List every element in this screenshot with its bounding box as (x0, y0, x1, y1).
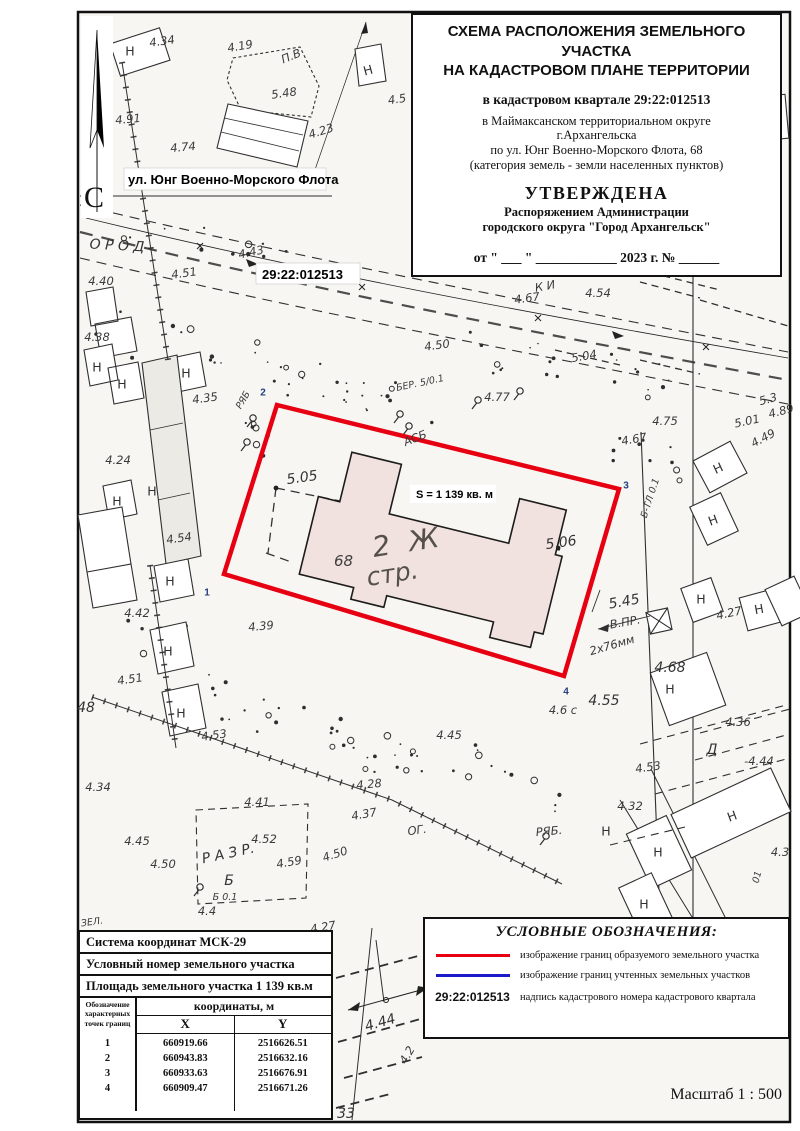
terrain-dot (381, 395, 383, 397)
legend-item: изображение границ учтенных земельных уч… (425, 970, 788, 981)
authority-line2: городского округа "Город Архангельск" (413, 220, 780, 236)
terrain-dot (273, 380, 276, 383)
map-label: 1 (204, 588, 210, 599)
legend-item: 29:22:012513надпись кадастрового номера … (425, 990, 788, 1004)
coordinate-value: 2516671.26 (235, 1081, 332, 1096)
terrain-dot (400, 743, 402, 745)
coordinate-data-area: 1234 660919.66660943.83660933.63660909.4… (137, 1034, 331, 1111)
terrain-dot (610, 353, 613, 356)
coordinate-grid: Обозначение характерных точек границ коо… (80, 998, 331, 1111)
map-label: 4.54 (585, 286, 611, 300)
map-label: 4.45 (124, 834, 150, 848)
map-label: 3 (623, 481, 629, 492)
coordinate-value: 660933.63 (137, 1066, 234, 1081)
terrain-dot (396, 766, 399, 769)
terrain-dot (278, 707, 280, 709)
map-label: 4.52 (251, 832, 277, 846)
terrain-dot (280, 366, 282, 368)
cadastral-quarter-line: в кадастровом квартале 29:22:012513 (413, 92, 780, 108)
legend-item: изображение границ образуемого земельног… (425, 950, 788, 961)
street-label: ул. Юнг Военно-Морского Флота (128, 172, 339, 187)
coordinate-value: 660909.47 (137, 1081, 234, 1096)
north-label: С (84, 181, 104, 214)
map-label: 4.3 (771, 845, 789, 859)
terrain-dot (612, 449, 616, 453)
xy-header-row: X Y (137, 1016, 331, 1034)
coordinate-value: 3 (80, 1066, 135, 1081)
map-label: Н (639, 897, 648, 912)
terrain-dot (416, 755, 418, 757)
map-label: Н (165, 574, 174, 589)
legend-box: УСЛОВНЫЕ ОБОЗНАЧЕНИЯ: изображение границ… (423, 917, 790, 1039)
map-label: Н (181, 366, 190, 381)
map-label: 4.39 (248, 618, 275, 634)
terrain-dot (130, 356, 134, 360)
terrain-dot (343, 399, 345, 401)
terrain-dot (504, 771, 506, 773)
terrain-dot (346, 390, 348, 392)
terrain-dot (469, 331, 472, 334)
terrain-dot (164, 228, 166, 230)
title-block: СХЕМА РАСПОЛОЖЕНИЯ ЗЕМЕЛЬНОГО УЧАСТКА НА… (411, 13, 782, 277)
map-label: РЯБ. (535, 823, 563, 839)
terrain-dot (367, 757, 369, 759)
coordinate-value: 2 (80, 1051, 135, 1066)
terrain-dot (286, 394, 289, 397)
terrain-dot (529, 347, 531, 349)
terrain-dot (388, 399, 392, 403)
point-header-line1: Обозначение (81, 1000, 134, 1009)
y-column-header: Y (235, 1016, 332, 1033)
recorded-boundary-symbol (425, 974, 520, 977)
map-label: Б 0.1 (213, 892, 238, 903)
terrain-dot (612, 459, 615, 462)
terrain-dot (220, 362, 222, 364)
map-label: Н (665, 682, 674, 697)
terrain-dot (634, 368, 636, 370)
map-label: 4.40 (88, 274, 114, 288)
terrain-dot (394, 754, 396, 756)
building-number-label: 68 (334, 552, 353, 570)
map-label: Н (163, 644, 172, 659)
map-label: 33 (337, 1106, 355, 1122)
conditional-number-row: Условный номер земельного участка (80, 954, 331, 976)
map-label: 4.36 (725, 715, 751, 729)
map-label: Н (653, 845, 662, 860)
terrain-dot (330, 732, 333, 735)
map-label: 4.74 (170, 139, 197, 155)
map-label: Д (706, 742, 718, 758)
terrain-dot (477, 749, 479, 751)
terrain-dot (557, 793, 561, 797)
map-label: 2 (260, 388, 266, 399)
map-label: Н (125, 44, 134, 59)
map-label: Н (696, 592, 705, 607)
x-column-header: X (137, 1016, 235, 1033)
terrain-dot (210, 354, 214, 358)
map-label: 4.34 (85, 780, 111, 794)
coordinate-system-row: Система координат МСК-29 (80, 932, 331, 954)
terrain-dot (220, 717, 223, 720)
address-line3: по ул. Юнг Военно-Морского Флота, 68 (413, 143, 780, 158)
coordinate-value: 4 (80, 1081, 135, 1096)
terrain-dot (365, 408, 367, 410)
approved-heading: УТВЕРЖДЕНА (413, 183, 780, 204)
coordinate-value: 2516632.16 (235, 1051, 332, 1066)
map-label: 4 (563, 687, 569, 698)
terrain-dot (335, 381, 338, 384)
point-number-column: 1234 (80, 1034, 137, 1111)
point-header-line2: характерных (81, 1009, 134, 1018)
terrain-dot (648, 459, 651, 462)
scheme-title: СХЕМА РАСПОЛОЖЕНИЯ ЗЕМЕЛЬНОГО УЧАСТКА НА… (413, 22, 780, 81)
terrain-dot (209, 358, 212, 361)
legend-rows: изображение границ образуемого земельног… (425, 950, 788, 1004)
terrain-dot (670, 461, 674, 465)
terrain-dot (636, 370, 639, 373)
terrain-dot (554, 810, 556, 812)
terrain-dot (171, 324, 175, 328)
map-label: 4.77 (484, 390, 510, 404)
terrain-dot (267, 361, 269, 363)
coordinate-value: 1 (80, 1036, 135, 1051)
authority-line1: Распоряжением Администрации (413, 205, 780, 221)
terrain-dot (180, 331, 182, 333)
address-block: в Маймаксанском территориальном округе г… (413, 114, 780, 173)
legend-title: УСЛОВНЫЕ ОБОЗНАЧЕНИЯ: (425, 924, 788, 941)
cadastral-number-symbol: 29:22:012513 (425, 990, 520, 1004)
terrain-dot (554, 804, 556, 806)
terrain-dot (243, 709, 245, 711)
terrain-dot (263, 699, 265, 701)
red-line-icon (436, 954, 510, 957)
terrain-dot (342, 744, 346, 748)
x-values-column: 660919.66660943.83660933.63660909.47 (137, 1034, 235, 1111)
terrain-dot (256, 730, 259, 733)
terrain-dot (319, 363, 321, 365)
terrain-dot (330, 727, 334, 731)
coordinate-value: 660919.66 (137, 1036, 234, 1051)
address-line1: в Маймаксанском территориальном округе (413, 114, 780, 129)
scale-label: Масштаб 1 : 500 (600, 1086, 782, 1104)
terrain-dot (353, 747, 355, 749)
blue-line-icon (436, 974, 510, 977)
terrain-dot (231, 252, 235, 256)
map-label: Н (117, 377, 126, 392)
terrain-dot (492, 372, 495, 375)
map-label: -4.44 (744, 754, 774, 768)
map-label: 4.50 (150, 857, 176, 871)
legend-code-text: 29:22:012513 (435, 990, 510, 1004)
map-label: 4.75 (652, 414, 678, 428)
terrain-dot (346, 382, 348, 384)
terrain-dot (322, 395, 324, 397)
terrain-dot (254, 352, 256, 354)
map-label: 4.91 (115, 111, 142, 127)
legend-item-text: надпись кадастрового номера кадастрового… (520, 992, 756, 1003)
map-label: 4.5 (387, 91, 407, 107)
terrain-dot (452, 769, 455, 772)
approval-authority: Распоряжением Администрации городского о… (413, 205, 780, 236)
terrain-dot (647, 389, 649, 391)
map-label: 4.24 (105, 453, 131, 467)
terrain-dot (499, 369, 502, 372)
terrain-dot (203, 227, 205, 229)
map-label: 4.6 с (549, 703, 578, 717)
coordinate-table: Система координат МСК-29 Условный номер … (78, 930, 333, 1120)
land-category-line: (категория земель - земли населенных пун… (413, 158, 780, 173)
map-label: 48 (77, 700, 95, 716)
coordinate-value: 2516626.51 (235, 1036, 332, 1051)
coordinate-value: 2516676.91 (235, 1066, 332, 1081)
map-label: 4.41 (244, 795, 270, 809)
point-header-line3: точек границ (81, 1019, 134, 1028)
map-label: Н (176, 706, 185, 721)
terrain-dot (140, 627, 143, 630)
terrain-dot (336, 730, 339, 733)
terrain-dot (545, 373, 548, 376)
cadastral-scheme-page: ул. Юнг Военно-Морского Флота 29:22:0125… (0, 0, 800, 1131)
terrain-dot (288, 383, 290, 385)
terrain-dot (302, 378, 304, 380)
quarter-number-label: 29:22:012513 (262, 267, 343, 282)
terrain-dot (245, 422, 247, 424)
terrain-dot (211, 687, 215, 691)
map-label: 4.45 (436, 728, 462, 742)
scheme-title-line2: НА КАДАСТРОВОМ ПЛАНЕ ТЕРРИТОРИИ (413, 61, 780, 81)
parcel-area-label: S = 1 139 кв. м (416, 489, 493, 501)
north-arrow: С (81, 16, 113, 218)
map-label: 4.4 (198, 904, 216, 918)
terrain-dot (373, 755, 377, 759)
terrain-dot (213, 361, 215, 363)
address-line2: г.Архангельска (413, 128, 780, 143)
area-row: Площадь земельного участка 1 139 кв.м (80, 976, 331, 998)
terrain-dot (474, 743, 478, 747)
map-label: Б (224, 873, 234, 889)
terrain-dot (556, 375, 559, 378)
terrain-dot (430, 421, 433, 424)
map-label: Н (601, 824, 610, 839)
map-label: ОГ. (407, 822, 428, 839)
terrain-dot (616, 359, 618, 361)
map-label: О Р О Д (89, 237, 145, 256)
map-label: Н (92, 360, 101, 375)
terrain-dot (421, 770, 423, 772)
terrain-dot (363, 382, 365, 384)
terrain-dot (669, 446, 671, 448)
terrain-dot (208, 674, 210, 676)
terrain-dot (490, 765, 492, 767)
formed-boundary-symbol (425, 954, 520, 957)
y-values-column: 2516626.512516632.162516676.912516671.26 (235, 1034, 332, 1111)
terrain-dot (509, 773, 513, 777)
terrain-dot (613, 380, 616, 383)
map-label: Н (112, 494, 121, 509)
map-label: 4.68 (654, 660, 685, 676)
legend-item-text: изображение границ образуемого земельног… (520, 950, 759, 961)
terrain-dot (385, 394, 389, 398)
map-label: 4.32 (617, 799, 643, 813)
coordinate-value: 660943.83 (137, 1051, 234, 1066)
coordinates-header: координаты, м (137, 998, 331, 1016)
terrain-dot (548, 360, 551, 363)
terrain-dot (345, 401, 347, 403)
terrain-dot (339, 717, 343, 721)
legend-item-text: изображение границ учтенных земельных уч… (520, 970, 750, 981)
terrain-dot (661, 385, 665, 389)
approval-date-line: от " ___ " ____________ 2023 г. № ______ (413, 250, 780, 266)
terrain-dot (373, 771, 375, 773)
map-label: 4.55 (588, 693, 619, 709)
map-label: 4.42 (124, 606, 150, 620)
terrain-dot (302, 706, 306, 710)
map-label: 4.38 (84, 330, 110, 344)
terrain-dot (224, 680, 228, 684)
map-label: Н (147, 484, 156, 499)
map-label: 4.28 (356, 776, 383, 792)
scheme-title-line1: СХЕМА РАСПОЛОЖЕНИЯ ЗЕМЕЛЬНОГО УЧАСТКА (413, 22, 780, 61)
terrain-dot (119, 310, 122, 313)
terrain-dot (537, 343, 539, 345)
terrain-dot (214, 694, 217, 697)
terrain-dot (228, 719, 230, 721)
coordinates-columns: координаты, м X Y 1234 660919.66660943.8… (137, 998, 331, 1111)
terrain-dot (361, 395, 363, 397)
terrain-dot (274, 720, 278, 724)
